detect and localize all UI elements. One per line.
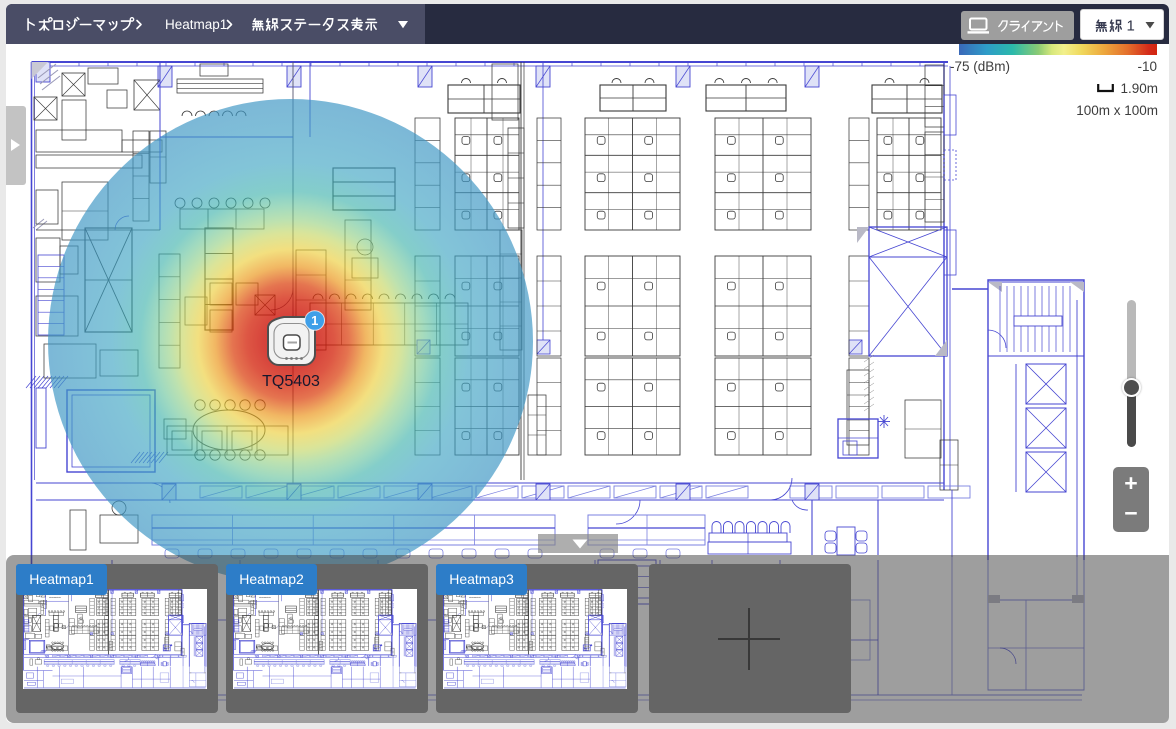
svg-text:1: 1: [1127, 18, 1135, 35]
svg-text:1: 1: [311, 313, 318, 328]
svg-text:Heatmap1: Heatmap1: [165, 17, 227, 32]
